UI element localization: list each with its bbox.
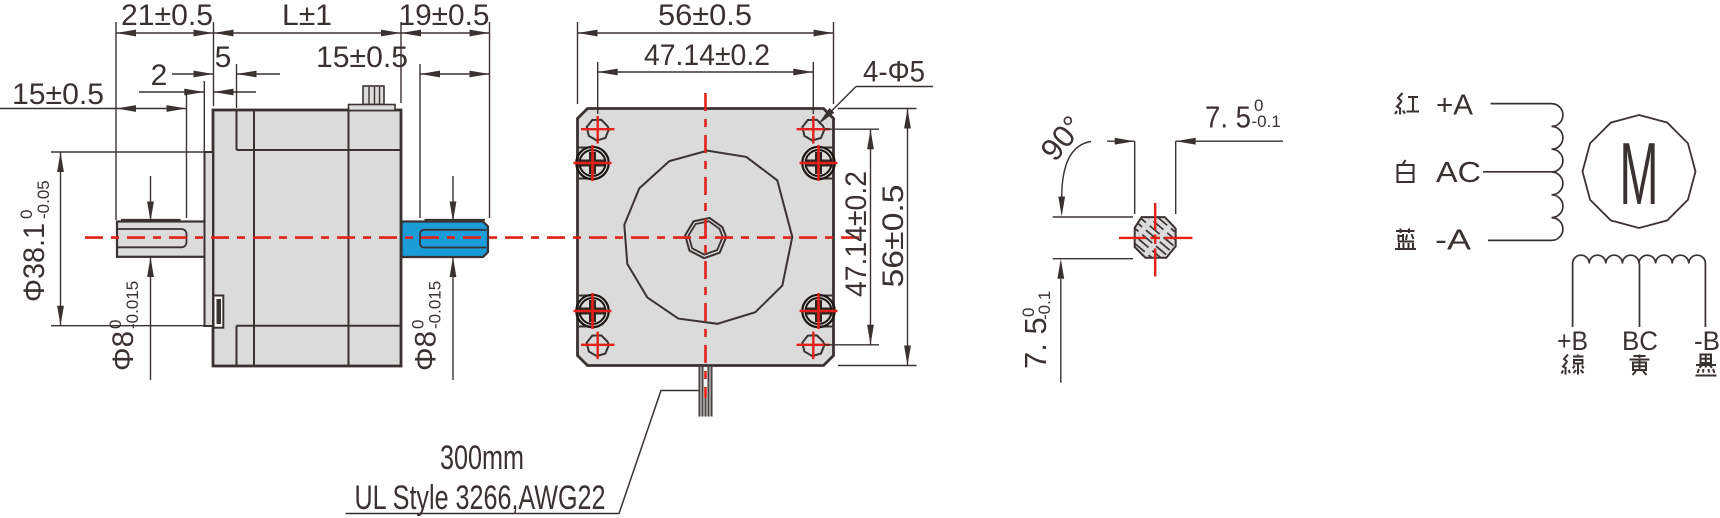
svg-text:Φ8: Φ8 xyxy=(107,331,140,371)
svg-text:M: M xyxy=(1620,124,1659,223)
svg-text:-0.015: -0.015 xyxy=(426,281,445,329)
svg-text:+A: +A xyxy=(1436,90,1474,122)
svg-text:15±0.5: 15±0.5 xyxy=(12,78,104,111)
svg-text:-0.05: -0.05 xyxy=(34,180,53,219)
svg-text:47.14±0.2: 47.14±0.2 xyxy=(644,39,770,72)
svg-text:19±0.5: 19±0.5 xyxy=(399,0,490,32)
svg-text:47.14±0.2: 47.14±0.2 xyxy=(840,171,873,297)
svg-text:-A: -A xyxy=(1435,225,1472,257)
svg-text:21±0.5: 21±0.5 xyxy=(121,0,213,32)
svg-text:-0.015: -0.015 xyxy=(123,281,142,329)
svg-text:-0.1: -0.1 xyxy=(1252,112,1281,131)
svg-text:UL Style 3266,AWG22: UL Style 3266,AWG22 xyxy=(355,479,606,517)
svg-text:L±1: L±1 xyxy=(282,0,332,32)
svg-text:Φ8: Φ8 xyxy=(410,331,443,371)
svg-text:2: 2 xyxy=(151,59,168,92)
svg-text:300mm: 300mm xyxy=(440,439,524,477)
svg-text:Φ38.1: Φ38.1 xyxy=(18,223,51,302)
svg-text:BC: BC xyxy=(1622,326,1658,356)
svg-text:AC: AC xyxy=(1436,157,1481,189)
svg-text:56±0.5: 56±0.5 xyxy=(877,185,910,288)
svg-text:7. 5: 7. 5 xyxy=(1018,317,1053,369)
svg-text:15±0.5: 15±0.5 xyxy=(316,41,408,74)
svg-text:56±0.5: 56±0.5 xyxy=(658,0,752,32)
svg-text:7. 5: 7. 5 xyxy=(1205,100,1251,135)
svg-text:5: 5 xyxy=(215,41,232,74)
svg-text:-0.1: -0.1 xyxy=(1035,291,1054,320)
svg-text:+B: +B xyxy=(1557,326,1588,356)
svg-text:4-Φ5: 4-Φ5 xyxy=(863,56,925,89)
svg-text:-B: -B xyxy=(1694,326,1720,356)
